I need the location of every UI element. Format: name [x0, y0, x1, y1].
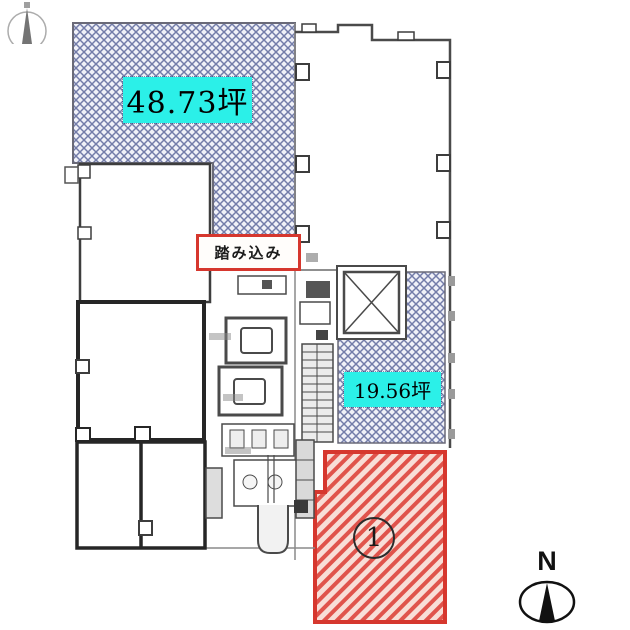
north-label: N: [515, 546, 579, 576]
unit-number-text: 1: [353, 517, 395, 559]
room-top-left: [80, 164, 210, 302]
unit-number-badge: 1: [352, 516, 396, 560]
area-label-large: 48.73坪: [123, 77, 252, 123]
elevator-shaft-x-icon: [337, 266, 406, 339]
service-core: [206, 253, 333, 553]
room-middle-left: [78, 302, 204, 440]
compass-icon: [517, 578, 577, 624]
area-label-small: 19.56坪: [344, 372, 441, 407]
small-compass-icon: [0, 0, 54, 44]
floor-plan: 48.73坪 19.56坪 踏み込み 1 N: [0, 0, 630, 630]
floor-plan-drawing: [0, 0, 630, 630]
vestibule-label: 踏み込み: [196, 234, 301, 271]
compass-north: N: [515, 546, 579, 624]
